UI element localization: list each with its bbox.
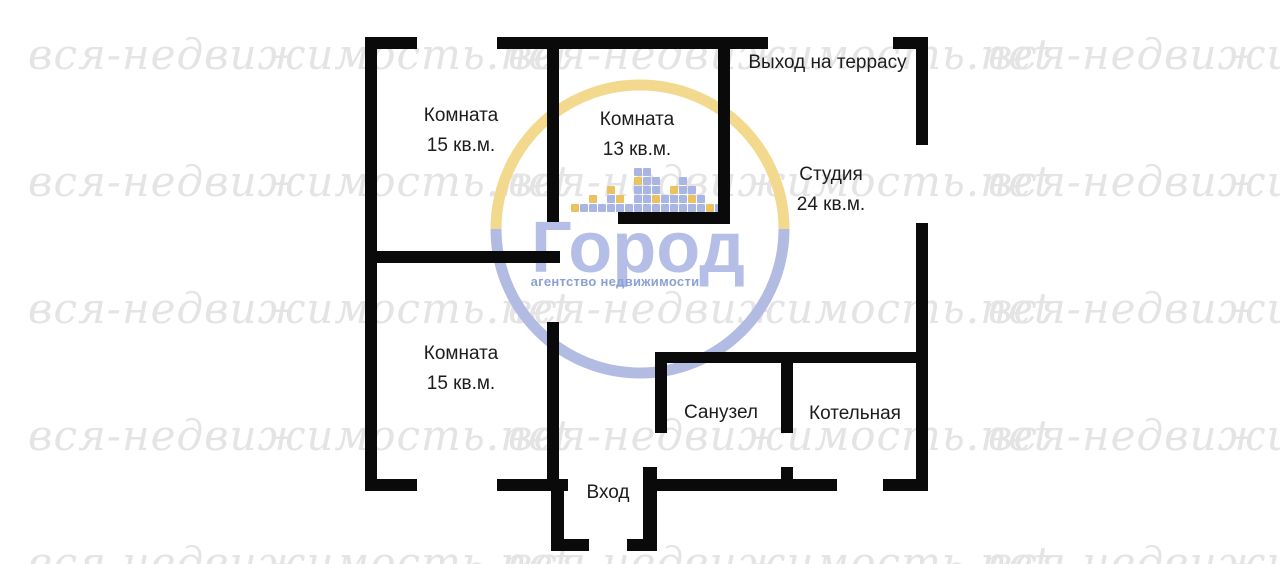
terrace-exit-label: Выход на террасу [745,48,910,78]
wall-divider-door-stub [781,467,793,479]
floor-plan: Комната 15 кв.м. Комната 13 кв.м. Выход … [0,0,1280,564]
room-area: 15 кв.м. [388,131,534,161]
room-label-studio: Студия 24 кв.м. [765,160,897,220]
wall-exterior-left [365,37,377,491]
wall-bathroom-boiler-divider [781,363,793,433]
room-label-bottom-left: Комната 15 кв.м. [388,339,534,399]
room-label-top-middle: Комната 13 кв.м. [564,105,710,165]
annotation-text: Вход [584,478,632,508]
wall-exterior-right-segment [916,37,928,145]
wall-hallway-left [547,322,559,491]
entrance-label: Вход [584,478,632,508]
room-area: 24 кв.м. [765,190,897,220]
room-name: Комната [388,101,534,131]
room-name: Котельная [797,399,913,429]
room-name: Комната [564,105,710,135]
wall-exterior-bottom-segment [365,479,417,491]
annotation-text: Выход на террасу [745,48,910,78]
floor-plan-image: вся-недвижимость.net вся-недвижимость.ne… [0,0,1280,564]
wall-exterior-bottom-segment [643,479,837,491]
wall-left-rooms-divider [365,251,560,263]
room-name: Санузел [668,398,774,428]
wall-exterior-top-segment [365,37,417,49]
wall-vestibule-bottom-segment [551,539,589,551]
wall-bathroom-top [655,352,928,363]
room-area: 13 кв.м. [564,135,710,165]
wall-exterior-bottom-segment [883,479,928,491]
wall-room13-right [718,37,730,224]
wall-between-top-rooms [547,37,559,222]
room-label-bathroom: Санузел [668,398,774,428]
room-name: Студия [765,160,897,190]
room-label-boiler: Котельная [797,399,913,429]
wall-vestibule-bottom-segment [627,539,657,551]
wall-room13-bottom [618,212,730,224]
room-area: 15 кв.м. [388,369,534,399]
room-name: Комната [388,339,534,369]
room-label-top-left: Комната 15 кв.м. [388,101,534,161]
wall-bathroom-left [655,352,667,433]
